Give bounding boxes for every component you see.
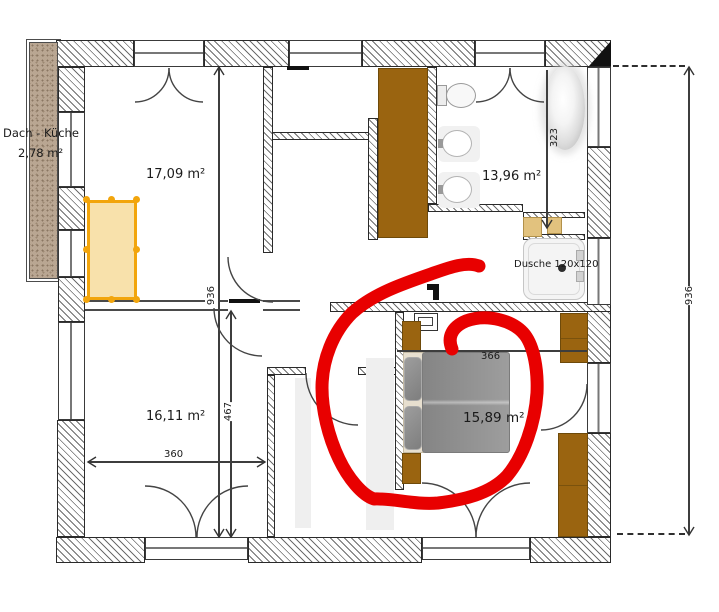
- sink-2-bowl: [442, 176, 472, 203]
- wall-left-1: [58, 67, 85, 112]
- window-top-middle: [289, 40, 362, 67]
- door-opening-top-bath: [475, 40, 545, 67]
- wall-bottom-3: [530, 537, 611, 563]
- dim-line-360: [88, 461, 265, 463]
- wardrobe-divider: [559, 485, 587, 486]
- utility-block-1[interactable]: [523, 217, 542, 237]
- door-leaf-mark: [229, 299, 260, 303]
- wall-rooms-divider-b: [263, 300, 300, 311]
- room-top-left-area: 17,09 m²: [146, 167, 205, 182]
- wall-top-2: [204, 40, 289, 67]
- selection-handle[interactable]: [133, 296, 140, 303]
- dim-label-366: 366: [481, 351, 500, 362]
- rug-strip-2: [366, 358, 394, 530]
- wardrobe-divider: [561, 338, 587, 339]
- window-right-shower: [587, 238, 611, 305]
- dim-label-467: 467: [222, 402, 235, 421]
- wall-right-3: [587, 433, 611, 537]
- dim-extension-bottom: [617, 533, 685, 535]
- bed[interactable]: [422, 352, 510, 453]
- wall-bottom-2: [248, 537, 422, 563]
- wall-right-1: [587, 147, 611, 238]
- toilet-bowl[interactable]: [446, 83, 476, 108]
- wall-smallroom-bottom: [272, 132, 380, 140]
- wardrobe-right-bottom[interactable]: [558, 433, 588, 537]
- dim-label-936-inner: 936: [205, 286, 218, 305]
- wall-right-2: [587, 305, 611, 363]
- nightstand-top[interactable]: [402, 321, 421, 352]
- floor-plan: Dach - Küche 2,78 m² 17,09 m² 16,11 m² 1…: [0, 0, 719, 612]
- dim-line-323: [546, 70, 548, 228]
- wall-top-1: [56, 40, 134, 67]
- attic-area-label: 2,78 m²: [18, 146, 63, 160]
- window-left-2: [58, 230, 85, 277]
- wall-midroom-left: [267, 375, 275, 537]
- wardrobe-right-top[interactable]: [560, 313, 588, 363]
- selection-handle[interactable]: [133, 196, 140, 203]
- shower-fixture-icon-2: [576, 271, 584, 282]
- selection-handle[interactable]: [83, 296, 90, 303]
- window-left-3: [58, 322, 85, 420]
- shower-label: Dusche 120x120: [514, 259, 599, 270]
- bedroom-area: 15,89 m²: [463, 410, 525, 426]
- selection-handle[interactable]: [133, 246, 140, 253]
- bed-pillow-2: [404, 406, 422, 450]
- dim-line-467: [230, 311, 232, 537]
- room-bottom-left-area: 16,11 m²: [146, 409, 205, 424]
- sink-2-tap: [438, 185, 443, 194]
- wall-left-4: [57, 420, 85, 537]
- rug-strip-1: [295, 378, 311, 528]
- selected-furniture[interactable]: [87, 200, 137, 300]
- terrace-door-room2: [145, 537, 248, 560]
- wall-bottom-1: [56, 537, 145, 563]
- hall-wardrobe[interactable]: [378, 68, 428, 238]
- dim-label-323: 323: [548, 128, 561, 147]
- door-opening-top-left: [134, 40, 204, 67]
- wall-left-3: [58, 277, 85, 322]
- door-opening-right-bedroom: [587, 363, 611, 433]
- window-right-tub: [587, 67, 611, 147]
- sink-2[interactable]: [438, 172, 480, 208]
- wall-left-2: [58, 187, 85, 230]
- wall-niche-left: [368, 118, 378, 240]
- attic-label: Dach - Küche: [3, 126, 79, 140]
- bathroom-area: 13,96 m²: [482, 169, 541, 184]
- wall-top-3: [362, 40, 475, 67]
- dim-line-936-inner: [218, 67, 220, 537]
- selection-handle[interactable]: [108, 296, 115, 303]
- sink-1-bowl: [442, 130, 472, 157]
- selection-handle[interactable]: [108, 196, 115, 203]
- wall-hall-bottom-left: [267, 367, 306, 375]
- attic-strip: [29, 42, 58, 279]
- terrace-door-bedroom: [422, 537, 530, 560]
- bed-pillow-1: [404, 357, 422, 401]
- nightstand-bottom[interactable]: [402, 453, 421, 484]
- sink-1[interactable]: [438, 126, 480, 162]
- selection-handle[interactable]: [83, 196, 90, 203]
- wall-hall-left: [263, 67, 273, 253]
- utility-block-2[interactable]: [547, 217, 562, 234]
- dim-label-360: 360: [163, 449, 184, 460]
- wall-end-cap: [433, 288, 439, 300]
- dim-extension-top: [613, 65, 685, 67]
- selection-handle[interactable]: [83, 246, 90, 253]
- wall-bath-left: [427, 67, 437, 204]
- wall-bedroom-top: [330, 302, 611, 312]
- wall-top-4: [545, 40, 611, 67]
- sink-1-tap: [438, 139, 443, 148]
- sill-mark: [287, 66, 309, 70]
- dim-label-936-outer: 936: [683, 286, 696, 305]
